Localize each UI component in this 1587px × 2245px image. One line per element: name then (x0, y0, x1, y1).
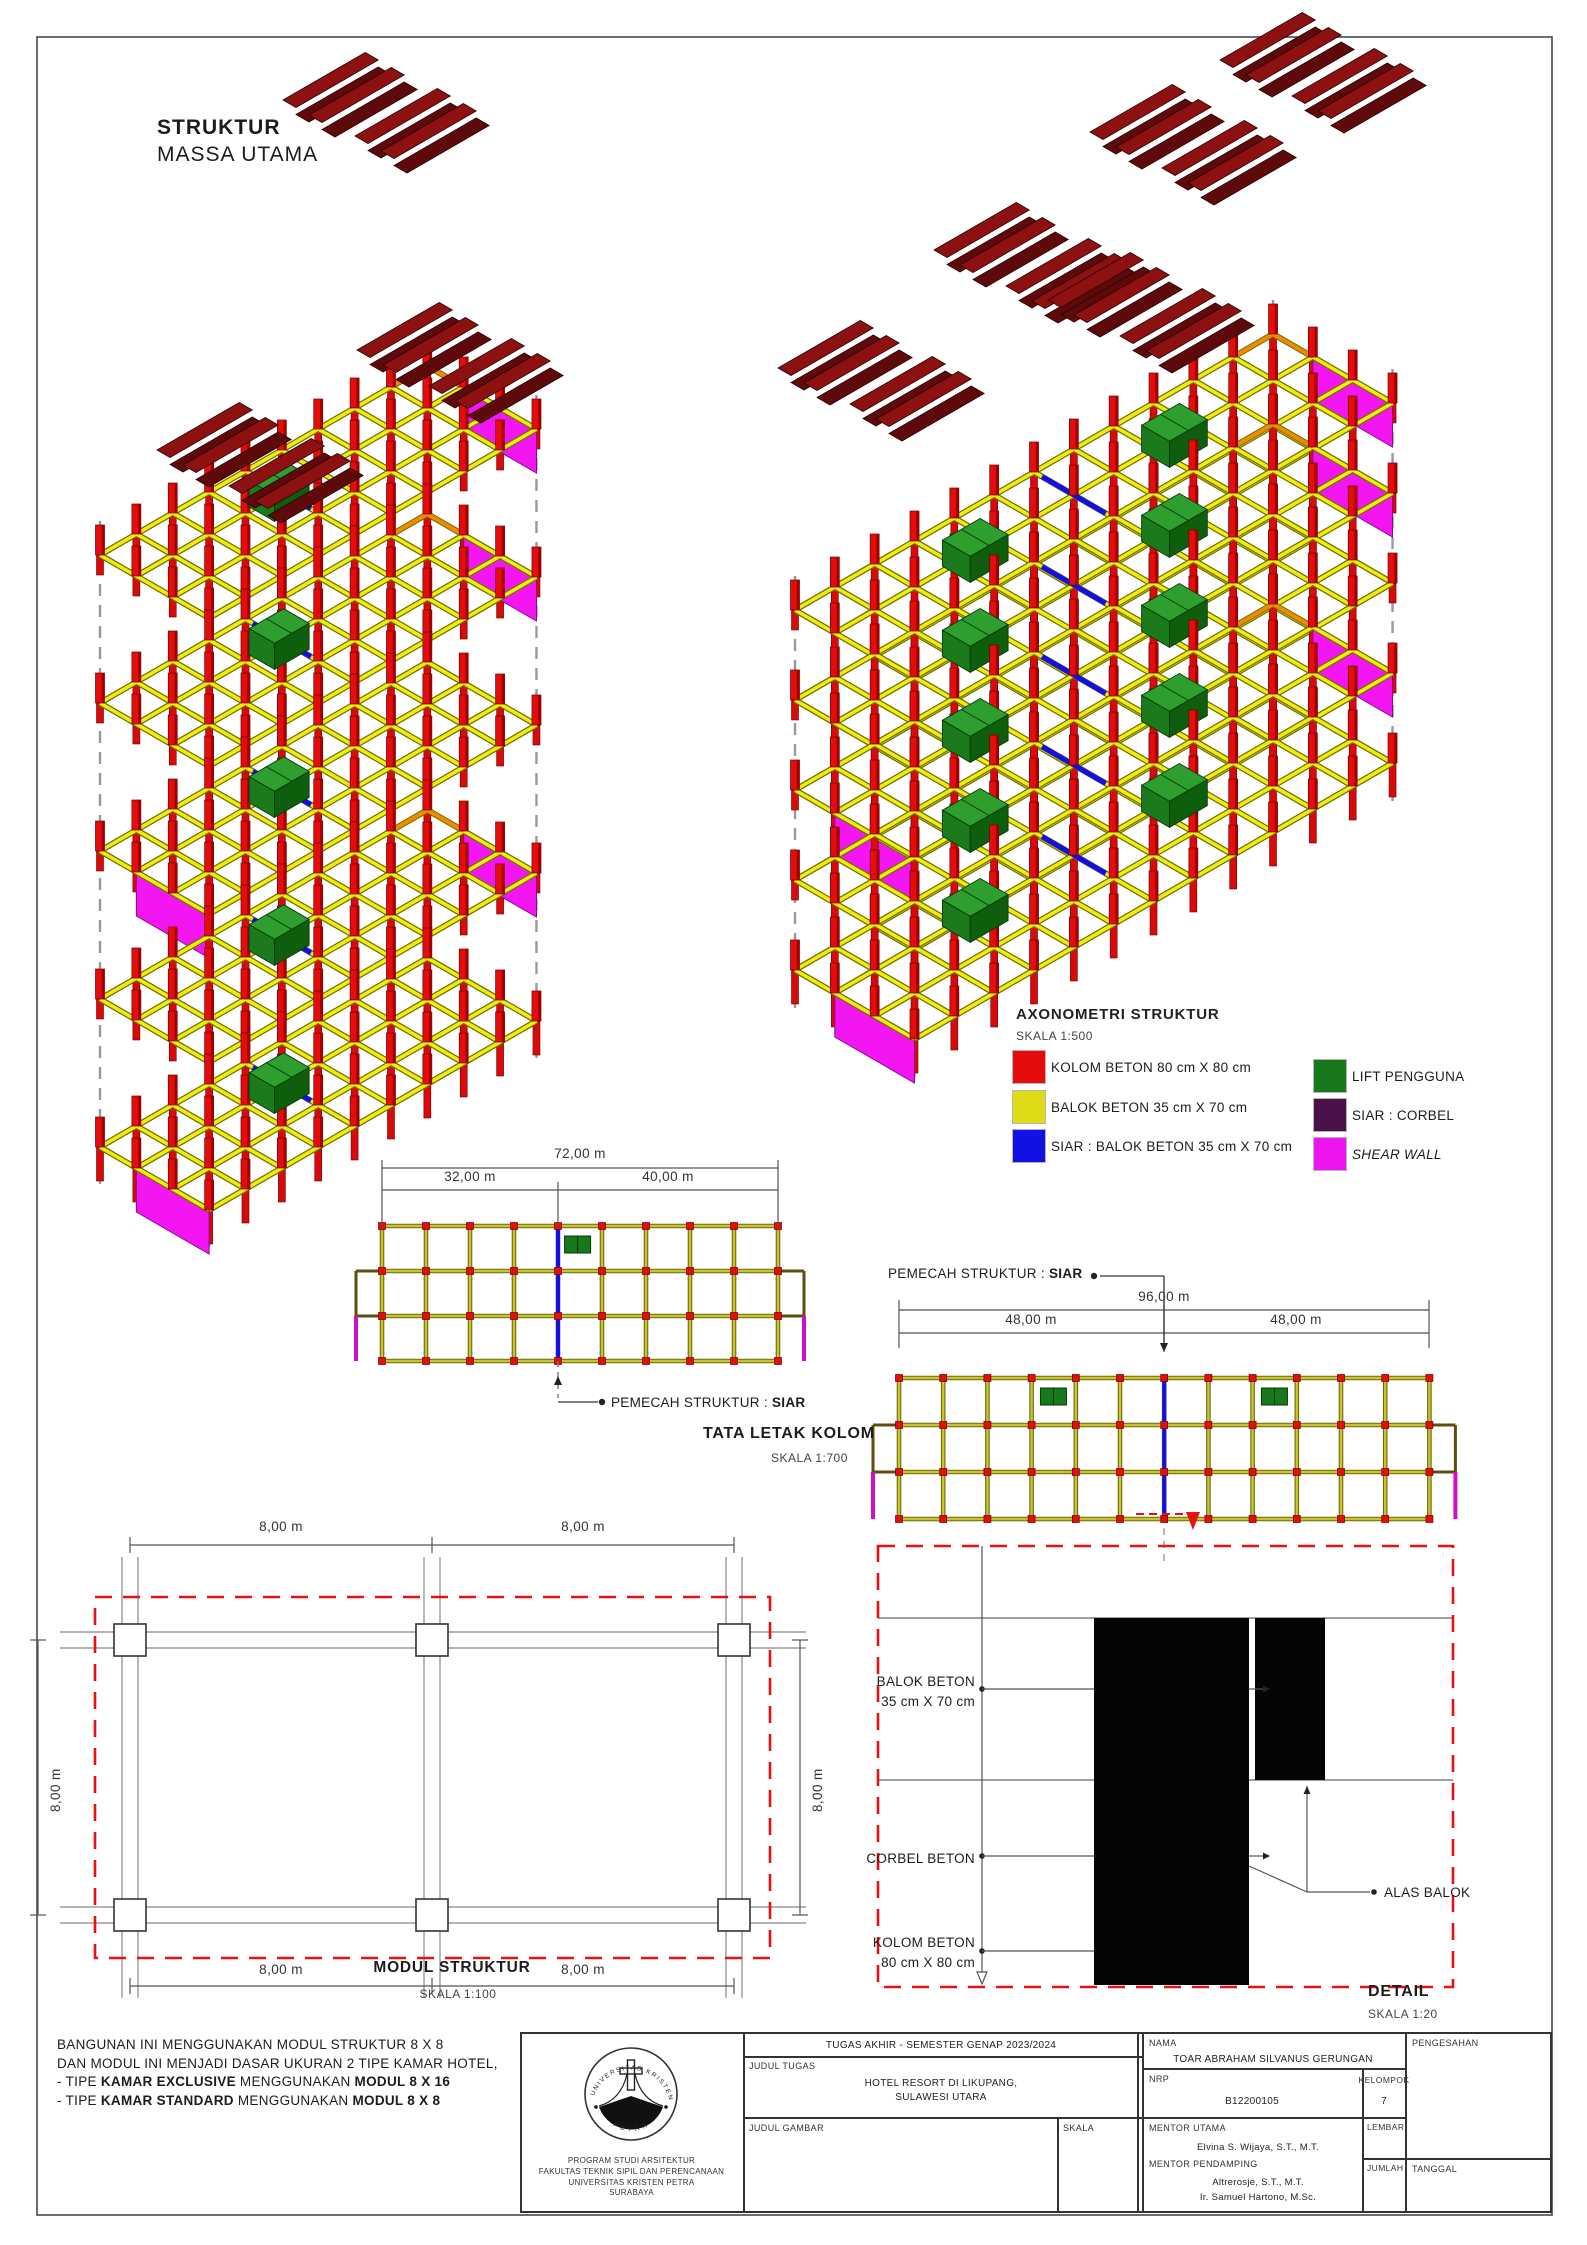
modul-title: MODUL STRUKTUR (373, 1959, 530, 1977)
tb-lembar-label: LEMBAR (1367, 2123, 1404, 2133)
tb-mentor-pendamping-value2: Ir. Samuel Hartono, M.Sc. (1200, 2193, 1316, 2204)
plan1-dim-total: 72,00 m (554, 1146, 606, 1162)
page-title-line1: STRUKTUR (157, 116, 281, 140)
legend-item-lift-pengguna: LIFT PENGGUNA (1313, 1059, 1464, 1093)
tb-pengesahan-label: PENGESAHAN (1412, 2038, 1479, 2048)
modul-dim-bottom-right: 8,00 m (561, 1962, 605, 1978)
detail-label-kolom: KOLOM BETON80 cm X 80 cm (873, 1933, 975, 1972)
plan1-title: TATA LETAK KOLOM (703, 1425, 875, 1443)
plan2-dim-left: 48,00 m (1005, 1312, 1057, 1328)
legend-item-kolom-beton: KOLOM BETON 80 cm X 80 cm (1012, 1050, 1251, 1084)
siar-corbel-swatch (1313, 1098, 1347, 1132)
university-logo: UNIVERSITAS KRISTENPETRA (581, 2044, 681, 2144)
legend-item-siar-balok: SIAR : BALOK BETON 35 cm X 70 cm (1012, 1129, 1292, 1163)
tb-judul-tugas-line1: HOTEL RESORT DI LIKUPANG, (865, 2078, 1018, 2090)
tb-nama-value: TOAR ABRAHAM SILVANUS GERUNGAN (1173, 2054, 1373, 2066)
kolom-beton-swatch (1012, 1050, 1046, 1084)
tb-kelompok-value: 7 (1381, 2096, 1387, 2108)
modul-dim-left-side: 8,00 m (48, 1768, 64, 1812)
tb-judul-gambar-label: JUDUL GAMBAR (749, 2123, 824, 2133)
legend-item-label: BALOK BETON 35 cm X 70 cm (1051, 1100, 1247, 1115)
legend-item-label: SHEAR WALL (1352, 1147, 1442, 1162)
page-title-line2: MASSA UTAMA (157, 143, 318, 167)
modul-dim-top-right: 8,00 m (561, 1519, 605, 1535)
legend-item-label: SIAR : CORBEL (1352, 1108, 1454, 1123)
legend-item-label: LIFT PENGGUNA (1352, 1069, 1464, 1084)
detail-label-corbel: CORBEL BETON (866, 1849, 975, 1869)
tb-nama-label: NAMA (1149, 2038, 1177, 2048)
tb-mentor-pendamping-value1: Altrerosje, S.T., M.T. (1212, 2178, 1304, 2189)
tb-judul-tugas-label: JUDUL TUGAS (749, 2061, 815, 2071)
detail-label-alas-balok: ALAS BALOK (1384, 1885, 1470, 1901)
structure-notes: BANGUNAN INI MENGGUNAKAN MODUL STRUKTUR … (57, 2036, 498, 2111)
siar-balok-swatch (1012, 1129, 1046, 1163)
tb-jumlah-label: JUMLAH (1367, 2164, 1403, 2174)
legend-item-siar-corbel: SIAR : CORBEL (1313, 1098, 1454, 1132)
tb-skala-label: SKALA (1063, 2123, 1094, 2133)
detail-label-balok: BALOK BETON35 cm X 70 cm (877, 1672, 975, 1711)
shear-wall-swatch (1313, 1137, 1347, 1171)
tb-mentor-pendamping-label: MENTOR PENDAMPING (1149, 2159, 1258, 2169)
legend-scale: SKALA 1:500 (1016, 1030, 1093, 1044)
plan2-dim-total: 96,00 m (1138, 1289, 1190, 1305)
tb-mentor-utama-value: Elvina S. Wijaya, S.T., M.T. (1197, 2143, 1319, 2154)
balok-beton-swatch (1012, 1090, 1046, 1124)
tb-judul-tugas-line2: SULAWESI UTARA (895, 2092, 986, 2104)
tb-tanggal-label: TANGGAL (1412, 2164, 1457, 2174)
tb-nrp-value: B12200105 (1225, 2096, 1279, 2108)
plan2-pemecah-label: PEMECAH STRUKTUR : SIAR (888, 1266, 1082, 1282)
detail-scale: SKALA 1:20 (1368, 2008, 1438, 2022)
tb-mentor-utama-label: MENTOR UTAMA (1149, 2123, 1226, 2133)
legend-item-label: SIAR : BALOK BETON 35 cm X 70 cm (1051, 1139, 1292, 1154)
legend-item-balok-beton: BALOK BETON 35 cm X 70 cm (1012, 1090, 1247, 1124)
drawing-sheet: STRUKTUR MASSA UTAMA AXONOMETRI STRUKTUR… (0, 0, 1587, 2245)
plan1-scale: SKALA 1:700 (771, 1452, 848, 1466)
legend-title: AXONOMETRI STRUKTUR (1016, 1006, 1220, 1023)
plan1-dim-right: 40,00 m (642, 1169, 694, 1185)
institution-text: PROGRAM STUDI ARSITEKTUR FAKULTAS TEKNIK… (520, 2156, 743, 2199)
tb-header: TUGAS AKHIR - SEMESTER GENAP 2023/2024 (826, 2040, 1056, 2052)
modul-dim-bottom-left: 8,00 m (259, 1962, 303, 1978)
modul-dim-right-side: 8,00 m (810, 1768, 826, 1812)
modul-scale: SKALA 1:100 (420, 1988, 497, 2002)
plan2-dim-right: 48,00 m (1270, 1312, 1322, 1328)
lift-pengguna-swatch (1313, 1059, 1347, 1093)
plan1-dim-left: 32,00 m (444, 1169, 496, 1185)
tb-kelompok-label: KELOMPOK (1359, 2076, 1410, 2086)
detail-title: DETAIL (1368, 1983, 1429, 2001)
legend-item-shear-wall: SHEAR WALL (1313, 1137, 1442, 1171)
modul-dim-top-left: 8,00 m (259, 1519, 303, 1535)
legend-item-label: KOLOM BETON 80 cm X 80 cm (1051, 1060, 1251, 1075)
tb-nrp-label: NRP (1149, 2074, 1169, 2084)
plan1-pemecah-label: PEMECAH STRUKTUR : SIAR (611, 1395, 805, 1411)
